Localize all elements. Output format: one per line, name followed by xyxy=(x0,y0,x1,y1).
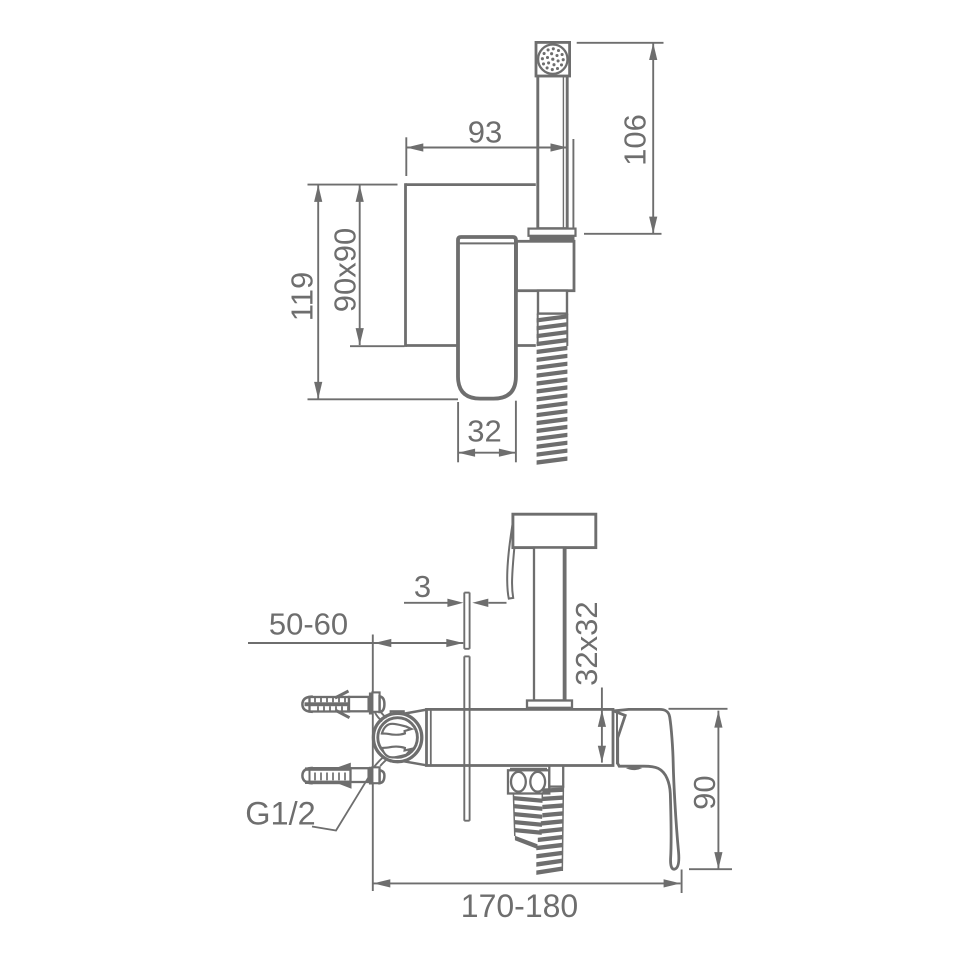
svg-text:119: 119 xyxy=(284,272,319,321)
svg-text:G1/2: G1/2 xyxy=(245,795,315,831)
svg-text:32x32: 32x32 xyxy=(569,601,604,685)
svg-text:32: 32 xyxy=(467,413,501,448)
svg-text:93: 93 xyxy=(468,114,502,149)
svg-text:106: 106 xyxy=(617,114,652,166)
svg-text:50-60: 50-60 xyxy=(269,606,348,641)
svg-text:170-180: 170-180 xyxy=(461,888,578,924)
svg-text:90: 90 xyxy=(687,775,722,809)
svg-text:90x90: 90x90 xyxy=(327,228,362,312)
svg-text:3: 3 xyxy=(414,569,431,604)
